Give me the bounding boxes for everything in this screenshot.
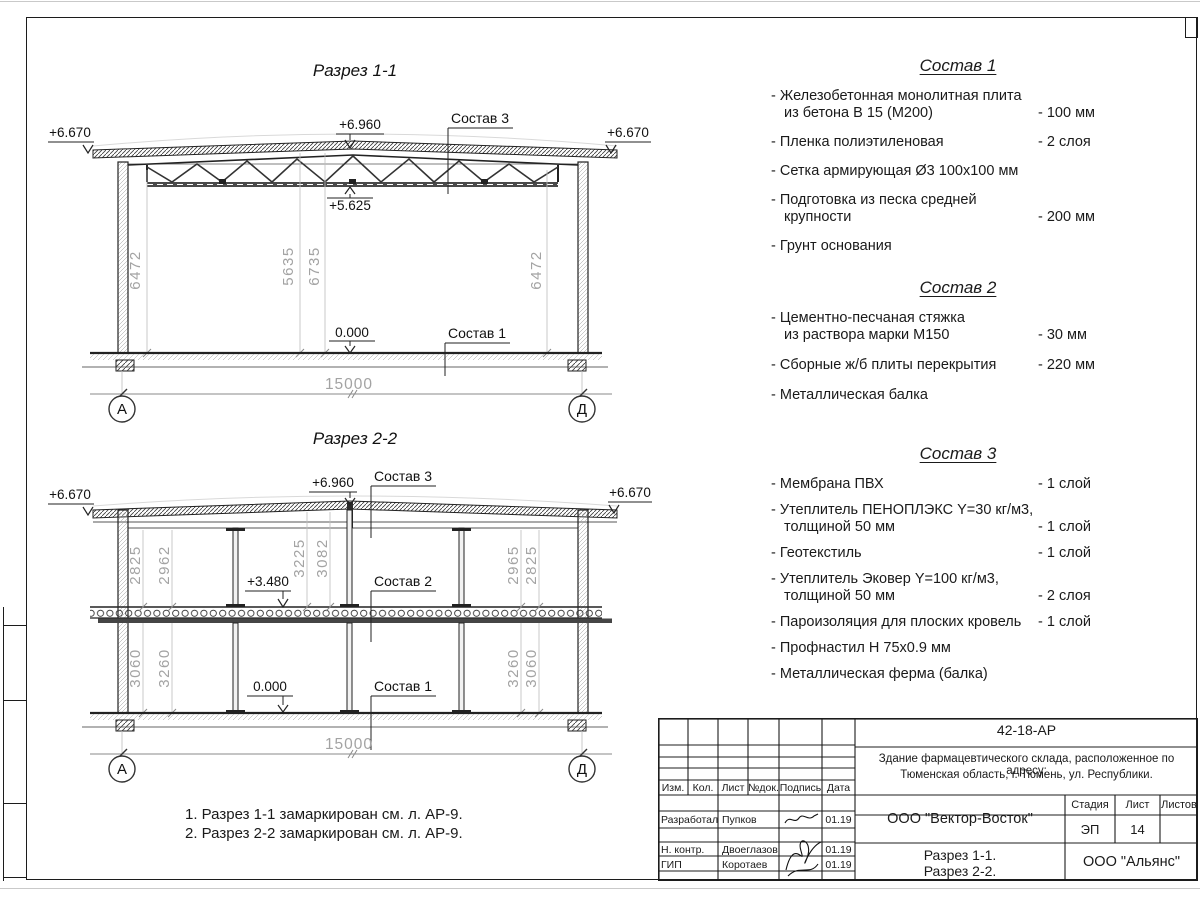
axis-letter-right: Д: [577, 401, 587, 418]
composition-2: Состав 2 - Цементно-песчаная стяжка из р…: [735, 279, 1145, 417]
level-apex-label: +6.960: [339, 117, 381, 132]
level-arrow: [345, 187, 355, 194]
col-list: Лист: [718, 782, 748, 794]
level-arrow: [278, 705, 288, 712]
row-date: 01.19: [822, 844, 855, 856]
foundation-left: [116, 360, 134, 371]
dim-height-right: 6472: [528, 250, 545, 289]
level-arrow: [83, 507, 93, 515]
section-2-2-drawing: Разрез 2-2 +6.670 +6.670 +6.960 +3.480 0…: [30, 428, 660, 798]
list-item: - Сетка армирующая Ø3 100х100 мм: [771, 163, 1145, 180]
foundation-left: [116, 720, 134, 731]
row-name: Двоеглазов: [722, 844, 778, 856]
extension-lines-lower: [143, 623, 539, 713]
truss-plate: [219, 179, 226, 184]
dim-u5: 2965: [505, 545, 522, 584]
col-podpis: Подпись: [779, 782, 822, 794]
axis-letter-left: А: [117, 401, 127, 418]
callout-roof-label: Состав 3: [374, 468, 432, 484]
composition-2-title: Состав 2: [771, 279, 1145, 296]
level-apex-label: +6.960: [312, 475, 354, 490]
level-left-label: +6.670: [49, 125, 91, 140]
axis-letter-left: А: [117, 761, 127, 778]
dim-u3: 3225: [291, 538, 308, 577]
column-upper: [459, 528, 464, 607]
notes: 1. Разрез 1-1 замаркирован см. л. АР-9. …: [185, 805, 463, 843]
composition-1-title: Состав 1: [771, 57, 1145, 74]
column-upper-middle: [347, 510, 352, 607]
composition-1: Состав 1 - Железобетонная монолитная пли…: [735, 57, 1145, 267]
level-line: [329, 341, 375, 346]
dim-u2: 2962: [156, 545, 173, 584]
section-title: Разрез 2-2: [313, 429, 398, 448]
sheet-value: 14: [1115, 822, 1160, 837]
page-edge-bottom: [0, 888, 1200, 889]
dim-u1: 2825: [127, 545, 144, 584]
dim-span-label: 15000: [325, 736, 373, 753]
list-item: - Профнастил Н 75х0.9 мм: [771, 640, 1145, 657]
floor-slab-strip: [90, 714, 602, 720]
row-name: Пупков: [722, 814, 757, 826]
dim-l3: 3260: [505, 648, 522, 687]
col-data: Дата: [822, 782, 855, 794]
column-capital: [452, 528, 471, 531]
developer-org: ООО "Вектор-Восток": [855, 811, 1065, 827]
truss-plate: [349, 179, 356, 184]
level-line: [245, 591, 291, 599]
project-address-line2: Тюменская область, г. Тюмень, ул. Респуб…: [857, 769, 1196, 781]
signature-razrabotal: [785, 814, 818, 823]
sheet-title-line2: Разрез 2-2.: [855, 863, 1065, 879]
col-kol: Кол.: [688, 782, 718, 794]
level-right-label: +6.670: [607, 125, 649, 140]
col-izm: Изм.: [658, 782, 688, 794]
dim-span-label: 15000: [325, 376, 373, 393]
hollow-core-slab-band: [90, 608, 602, 618]
floor-slab-strip: [90, 354, 602, 360]
list-item: - Металлическая балка: [771, 387, 1145, 404]
corner-box: [1185, 17, 1198, 38]
row-date: 01.19: [822, 814, 855, 826]
section-title: Разрез 1-1: [313, 61, 397, 80]
dim-l4: 3060: [523, 648, 540, 687]
callout-floor-label: Состав 1: [448, 325, 506, 341]
drawing-sheet: Разрез 1-1 +6.670 +6.670 +6.960 +5.625 0…: [0, 0, 1200, 900]
list-item: - Утеплитель ПЕНОПЛЭКС Y=30 кг/м3, толщи…: [771, 502, 1145, 536]
dim-l1: 3060: [127, 648, 144, 687]
column-lower: [459, 623, 464, 713]
level-line: [247, 696, 293, 705]
column-lower: [347, 623, 352, 713]
column-lower: [233, 623, 238, 713]
page-edge-top: [0, 1, 1200, 2]
dim-u4: 3082: [314, 538, 331, 577]
sheet-label: Лист: [1115, 799, 1160, 811]
stage-value: ЭП: [1065, 822, 1115, 837]
level-mid-label: +3.480: [247, 574, 289, 589]
callout-roof-label: Состав 3: [451, 110, 509, 126]
level-arrow: [278, 599, 288, 607]
list-item: - Сборные ж/б плиты перекрытия- 220 мм: [771, 357, 1145, 374]
wall-right: [578, 162, 588, 353]
sheet-title-line1: Разрез 1-1.: [855, 847, 1065, 863]
dim-height-left: 6472: [127, 250, 144, 289]
dim-height-mid2: 6735: [306, 246, 323, 285]
dim-l2: 3260: [156, 648, 173, 687]
doc-number: 42-18-АР: [855, 722, 1198, 738]
roof-slab: [93, 501, 617, 518]
callout-floor-leader: [371, 696, 436, 750]
extension-lines-upper: [143, 512, 539, 607]
side-stamp: [3, 607, 26, 881]
row-name: Коротаев: [722, 859, 767, 871]
list-item: - Пленка полиэтиленовая- 2 слоя: [771, 134, 1145, 151]
list-item: - Железобетонная монолитная плита из бет…: [771, 88, 1145, 122]
foundation-right: [568, 720, 586, 731]
note-line: 2. Разрез 2-2 замаркирован см. л. АР-9.: [185, 824, 463, 843]
level-floor-label: 0.000: [253, 679, 287, 694]
list-item: - Подготовка из песка средней крупности-…: [771, 192, 1145, 226]
level-line: [336, 134, 384, 140]
level-arrow: [83, 145, 93, 153]
level-line: [309, 492, 357, 498]
level-truss-label: +5.625: [329, 198, 371, 213]
list-item: - Цементно-песчаная стяжка из раствора м…: [771, 310, 1145, 344]
row-role: Н. контр.: [661, 844, 704, 856]
level-floor-label: 0.000: [335, 325, 369, 340]
firm-org: ООО "Альянс": [1065, 854, 1198, 870]
column-capital: [226, 528, 245, 531]
stage-label: Стадия: [1065, 799, 1115, 811]
title-block: 42-18-АР Здание фармацевтического склада…: [658, 718, 1198, 881]
axis-letter-right: Д: [577, 761, 587, 778]
callout-mid-label: Состав 2: [374, 573, 432, 589]
truss-diagonals: [147, 156, 558, 182]
list-item: - Грунт основания: [771, 238, 1145, 255]
level-left-label: +6.670: [49, 487, 91, 502]
dim-u6: 2825: [523, 545, 540, 584]
list-item: - Металлическая ферма (балка): [771, 666, 1145, 683]
col-ndok: №док.: [748, 782, 779, 794]
composition-3: Состав 3 - Мембрана ПВХ- 1 слой - Утепли…: [735, 445, 1145, 692]
level-right-label: +6.670: [609, 485, 651, 500]
list-item: - Мембрана ПВХ- 1 слой: [771, 476, 1145, 493]
callout-floor-label: Состав 1: [374, 678, 432, 694]
list-item: - Утеплитель Эковер Y=100 кг/м3, толщино…: [771, 571, 1145, 605]
column-upper: [233, 528, 238, 607]
truss-plate: [481, 179, 488, 184]
section-1-1-drawing: Разрез 1-1 +6.670 +6.670 +6.960 +5.625 0…: [30, 58, 660, 426]
dim-height-mid1: 5635: [280, 246, 297, 285]
row-role: Разработал: [661, 814, 718, 826]
sheets-label: Листов: [1160, 799, 1198, 811]
mid-floor-beam: [98, 619, 612, 624]
list-item: - Геотекстиль- 1 слой: [771, 545, 1145, 562]
row-role: ГИП: [661, 859, 682, 871]
row-date: 01.19: [822, 859, 855, 871]
list-item: - Пароизоляция для плоских кровель- 1 сл…: [771, 614, 1145, 631]
composition-3-title: Состав 3: [771, 445, 1145, 462]
foundation-right: [568, 360, 586, 371]
note-line: 1. Разрез 1-1 замаркирован см. л. АР-9.: [185, 805, 463, 824]
